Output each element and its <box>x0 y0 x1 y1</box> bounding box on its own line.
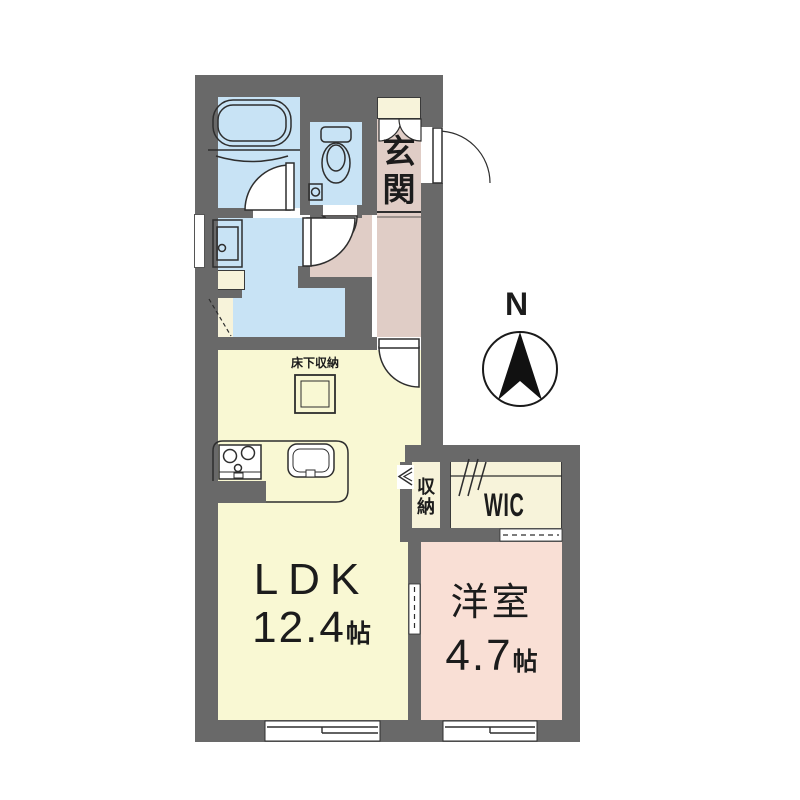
ldk-door <box>379 339 419 387</box>
wic-label: WIC <box>484 489 524 521</box>
bedroom-window <box>443 721 537 741</box>
ldk-name-label: LDK <box>218 558 405 602</box>
washer-dashed-mark <box>209 299 231 336</box>
closet-label: 収納 <box>416 477 434 517</box>
bedroom-sliding-door <box>409 584 420 634</box>
closet-door-chevron <box>397 465 414 489</box>
bedroom-size-label: 4.7帖 <box>421 634 562 678</box>
bedroom-size-value: 4.7 <box>445 634 512 678</box>
compass-north-icon <box>483 332 557 406</box>
compass-north-label: N <box>505 288 528 320</box>
fixtures-layer <box>0 0 800 800</box>
wic-sliding-door <box>500 529 562 541</box>
ldk-size-value: 12.4 <box>252 606 346 650</box>
entrance-door <box>433 128 490 183</box>
ldk-size-label: 12.4帖 <box>218 606 405 650</box>
washroom-door <box>303 218 355 266</box>
bathroom-door <box>245 163 294 210</box>
bathtub-icon <box>208 100 300 162</box>
stove-icon <box>219 445 261 479</box>
floor-storage-label: 床下収納 <box>281 357 349 369</box>
bedroom-size-unit: 帖 <box>513 650 538 675</box>
entrance-step-line <box>377 212 421 217</box>
sink-icon <box>288 444 334 477</box>
floor-plan: 玄関 床下収納 収納 WIC LDK 12.4帖 洋室 4.7帖 N <box>0 0 800 800</box>
ldk-window <box>265 721 380 741</box>
toilet-icon <box>309 127 351 200</box>
floor-storage-hatch <box>295 375 335 413</box>
bedroom-name-label: 洋室 <box>421 584 562 622</box>
ldk-size-unit: 帖 <box>346 622 371 647</box>
entrance-label: 玄関 <box>380 134 413 210</box>
washbasin-icon <box>213 220 242 267</box>
